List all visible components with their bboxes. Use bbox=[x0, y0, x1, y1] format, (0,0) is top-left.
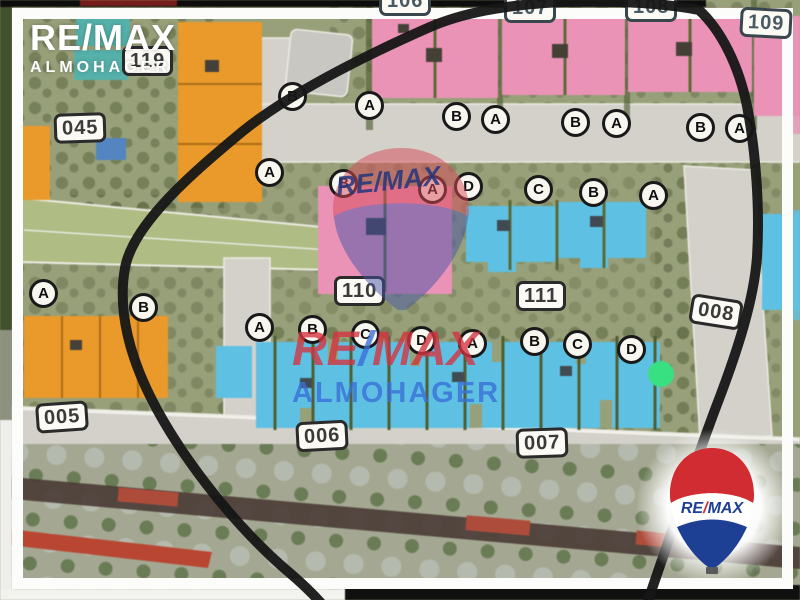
remax-balloon-watermark: RE/MAX bbox=[324, 146, 478, 314]
balloon-basket bbox=[706, 567, 718, 574]
center-watermark-line2: ALMOHAGER bbox=[292, 377, 500, 410]
corner-logo-wordmark: RE/MAX bbox=[30, 20, 176, 56]
remax-balloon-logo: RE/MAX ® bbox=[660, 446, 764, 578]
center-watermark-line1: RE/MAX bbox=[292, 326, 500, 374]
balloon-logo-bottom bbox=[677, 520, 747, 568]
watermark-slash: / bbox=[359, 323, 372, 376]
site-map-photo: 045119106107108109110111005006007008BABA… bbox=[0, 0, 800, 600]
corner-logo: RE/MAX ALMOHAGER bbox=[30, 20, 176, 77]
balloon-logo-text: RE/MAX bbox=[681, 500, 745, 517]
corner-logo-subtitle: ALMOHAGER bbox=[30, 59, 176, 77]
center-watermark: RE/MAX ALMOHAGER bbox=[292, 326, 500, 410]
registered-mark: ® bbox=[752, 567, 758, 576]
balloon-watermark-bottom bbox=[334, 203, 468, 310]
